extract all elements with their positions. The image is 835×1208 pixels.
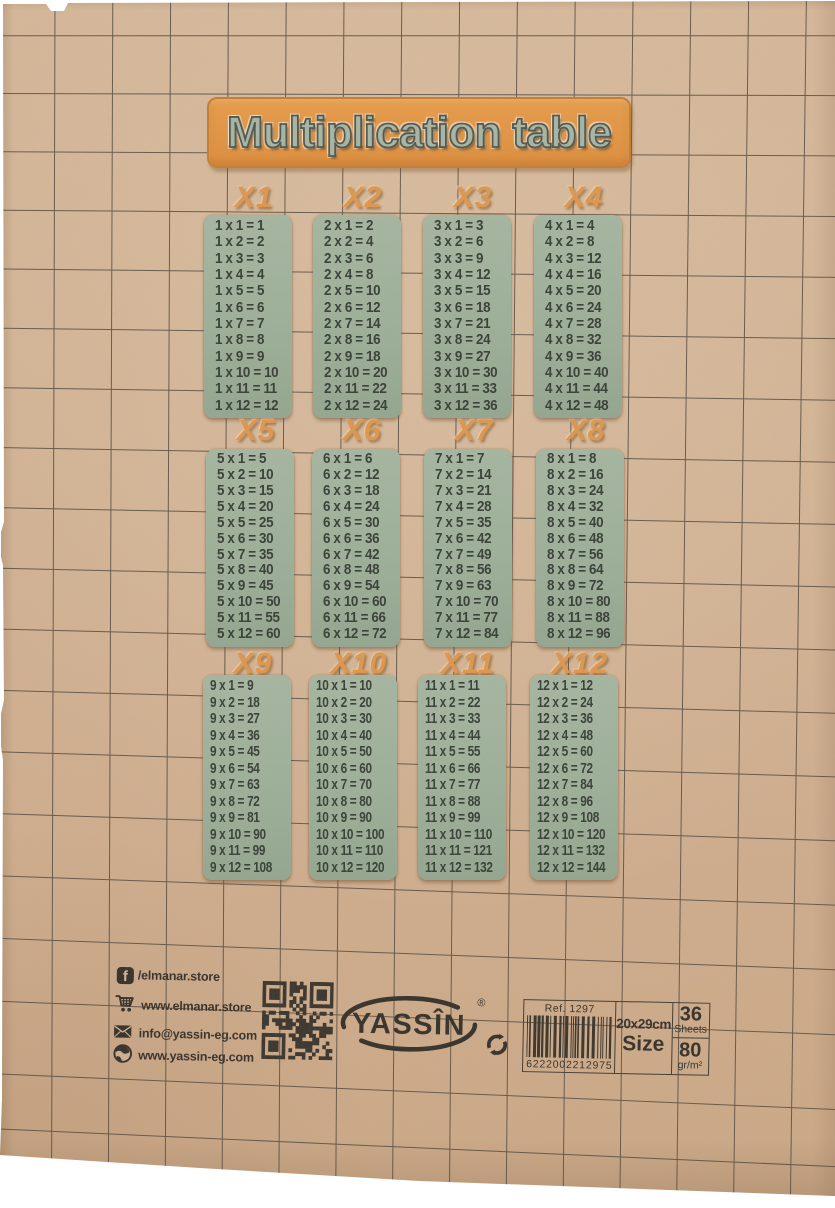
svg-text:®: ® (477, 997, 485, 1009)
svg-text:YASSÎN: YASSÎN (351, 1006, 466, 1042)
